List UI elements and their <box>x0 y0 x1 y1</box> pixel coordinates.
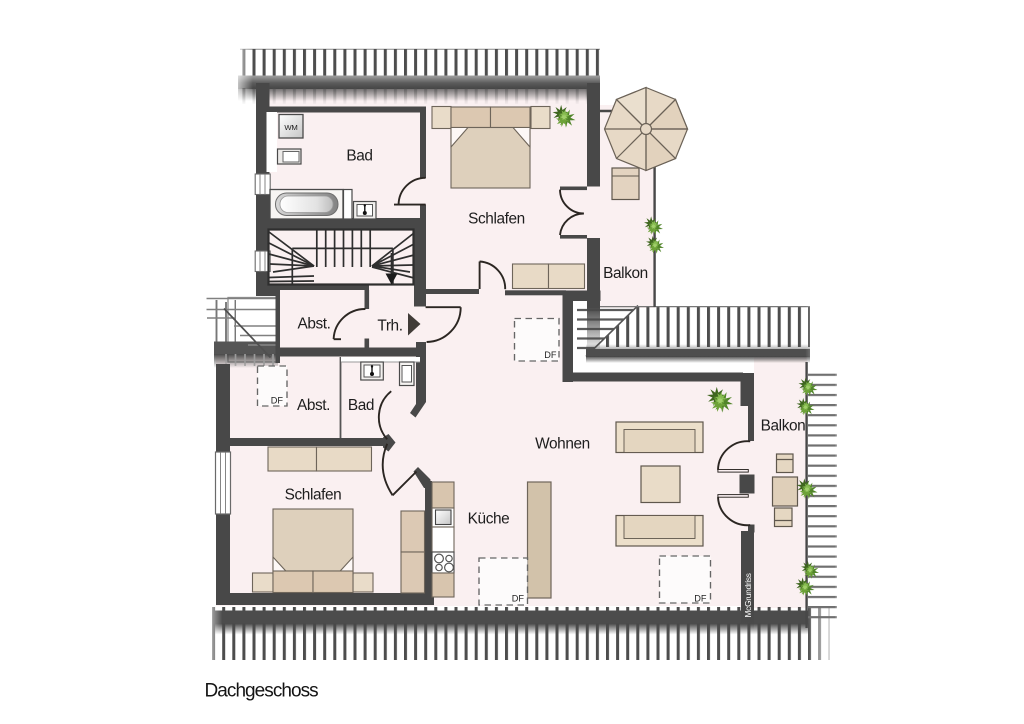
svg-text:Balkon: Balkon <box>603 265 648 282</box>
svg-text:Dachgeschoss: Dachgeschoss <box>205 680 319 701</box>
svg-text:DF: DF <box>512 594 525 604</box>
svg-text:Bad: Bad <box>346 148 372 165</box>
svg-text:Abst.: Abst. <box>297 316 330 333</box>
svg-text:Abst.: Abst. <box>297 397 330 414</box>
svg-text:WM: WM <box>284 123 297 132</box>
svg-text:Bad: Bad <box>348 397 374 414</box>
svg-text:McGrundriss: McGrundriss <box>743 573 753 617</box>
svg-text:Schlafen: Schlafen <box>285 487 342 504</box>
svg-text:Wohnen: Wohnen <box>535 436 590 453</box>
svg-text:DF: DF <box>544 350 557 360</box>
svg-text:DF: DF <box>694 594 707 604</box>
svg-text:Küche: Küche <box>468 511 510 528</box>
svg-text:Balkon: Balkon <box>761 418 806 435</box>
svg-text:Schlafen: Schlafen <box>468 211 525 228</box>
svg-text:Trh.: Trh. <box>377 318 402 335</box>
svg-text:DF: DF <box>271 396 284 406</box>
